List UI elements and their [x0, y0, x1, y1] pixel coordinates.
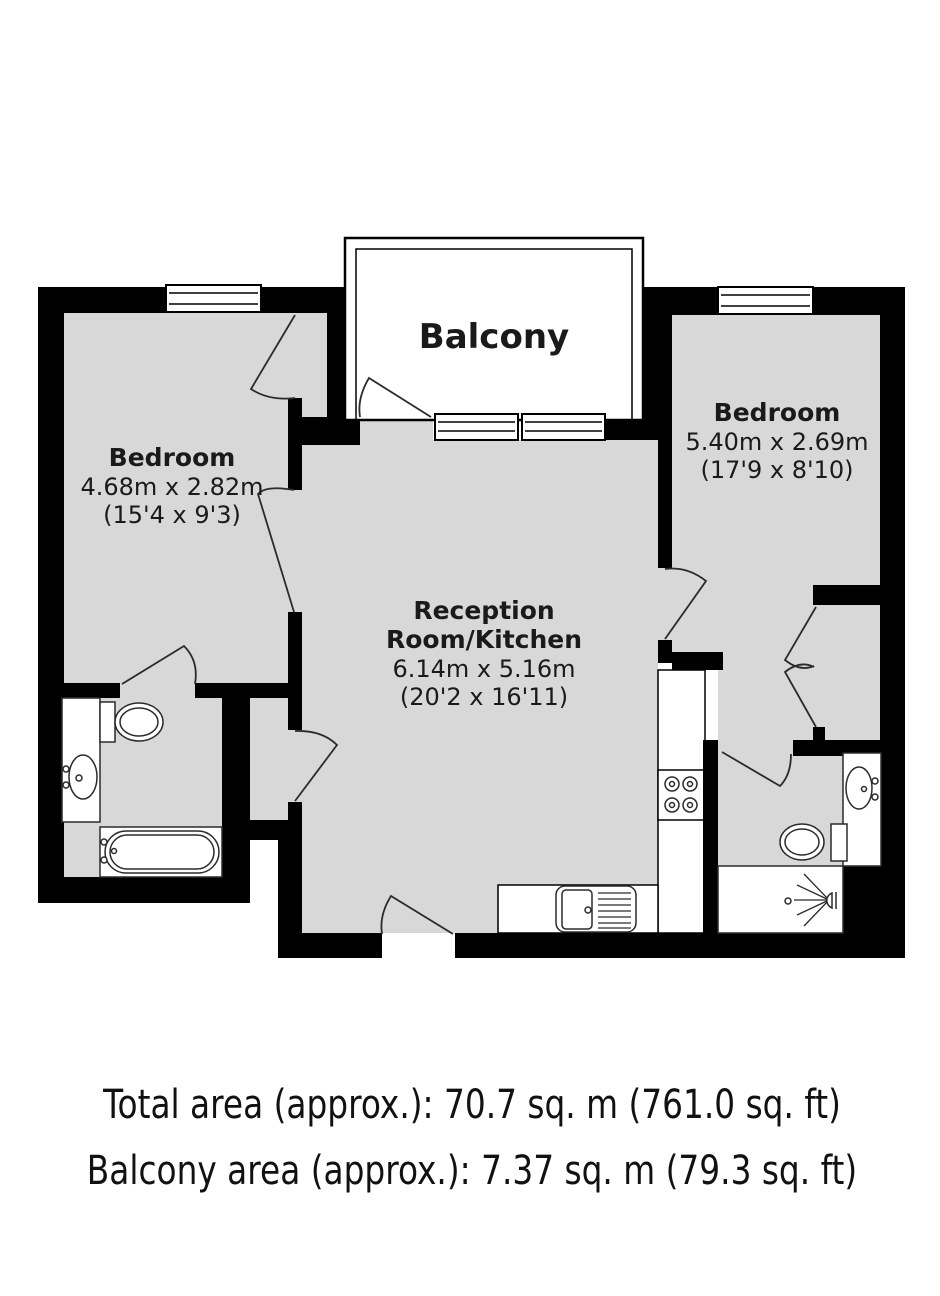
wall-segment: [222, 698, 250, 903]
bedroom-right-size-imperial: (17'9 x 8'10): [701, 456, 854, 484]
floorplan-page: Balcony Bedroom 4.68m x 2.82m (15'4 x 9'…: [0, 0, 940, 1296]
wall-segment: [278, 840, 302, 958]
wardrobe-floor: [817, 605, 882, 742]
window-bedroom-right: [718, 287, 813, 314]
reception-label-line2: Room/Kitchen: [386, 625, 582, 654]
kitchen-sink-icon: [556, 886, 636, 932]
cupboard-floor: [250, 698, 288, 820]
wall-segment: [38, 877, 250, 903]
window-reception-2: [522, 414, 605, 440]
wall-segment: [658, 438, 672, 568]
door-gap-floor: [288, 313, 302, 398]
door-gap-floor: [120, 683, 195, 698]
door-gap-floor: [288, 730, 302, 802]
wall-segment: [813, 727, 825, 742]
footer-area-text: Total area (approx.): 70.7 sq. m (761.0 …: [87, 1081, 857, 1194]
balcony-area-text: Balcony area (approx.): 7.37 sq. m (79.3…: [87, 1147, 857, 1194]
wall-segment: [813, 585, 905, 605]
toilet-icon: [780, 824, 847, 861]
wall-segment: [302, 933, 382, 958]
wall-segment: [38, 287, 166, 313]
window-bedroom-left: [166, 285, 261, 312]
door-gap-floor: [288, 490, 302, 612]
bedroom-left-size-imperial: (15'4 x 9'3): [103, 501, 241, 529]
toilet-icon: [100, 702, 163, 742]
wall-segment: [880, 287, 905, 958]
bathroom-right-floor: [718, 753, 843, 868]
wall-segment: [658, 640, 672, 663]
window-reception-1: [435, 414, 518, 440]
wall-segment: [261, 287, 345, 313]
closet-floor: [302, 313, 327, 417]
wall-segment: [703, 740, 718, 958]
wall-segment: [288, 612, 302, 730]
wall-segment: [195, 683, 302, 698]
reception-size-imperial: (20'2 x 16'11): [400, 683, 568, 711]
door-gap-floor: [658, 568, 672, 640]
reception-size-metric: 6.14m x 5.16m: [392, 655, 575, 683]
wall-segment: [38, 683, 120, 698]
bedroom-left-label: Bedroom: [109, 443, 236, 472]
hob-unit: [658, 770, 705, 820]
bedroom-right-label: Bedroom: [714, 398, 841, 427]
bedroom-left-size-metric: 4.68m x 2.82m: [80, 473, 263, 501]
bedroom-right-size-metric: 5.40m x 2.69m: [685, 428, 868, 456]
wall-segment: [843, 866, 880, 933]
shower-icon: [718, 866, 843, 933]
reception-label-line1: Reception: [413, 596, 554, 625]
wall-segment: [38, 287, 64, 903]
total-area-text: Total area (approx.): 70.7 sq. m (761.0 …: [102, 1081, 841, 1128]
bathtub-icon: [100, 827, 222, 877]
balcony-threshold-floor: [360, 418, 433, 440]
wall-segment: [672, 652, 723, 670]
wall-segment: [222, 820, 302, 840]
wall-segment: [288, 398, 302, 490]
wall-segment: [642, 287, 672, 440]
bathroom-right-doorway-floor: [718, 740, 793, 754]
wall-segment: [455, 933, 905, 958]
floorplan-canvas: Balcony Bedroom 4.68m x 2.82m (15'4 x 9'…: [0, 0, 940, 1296]
balcony-label: Balcony: [419, 317, 569, 357]
